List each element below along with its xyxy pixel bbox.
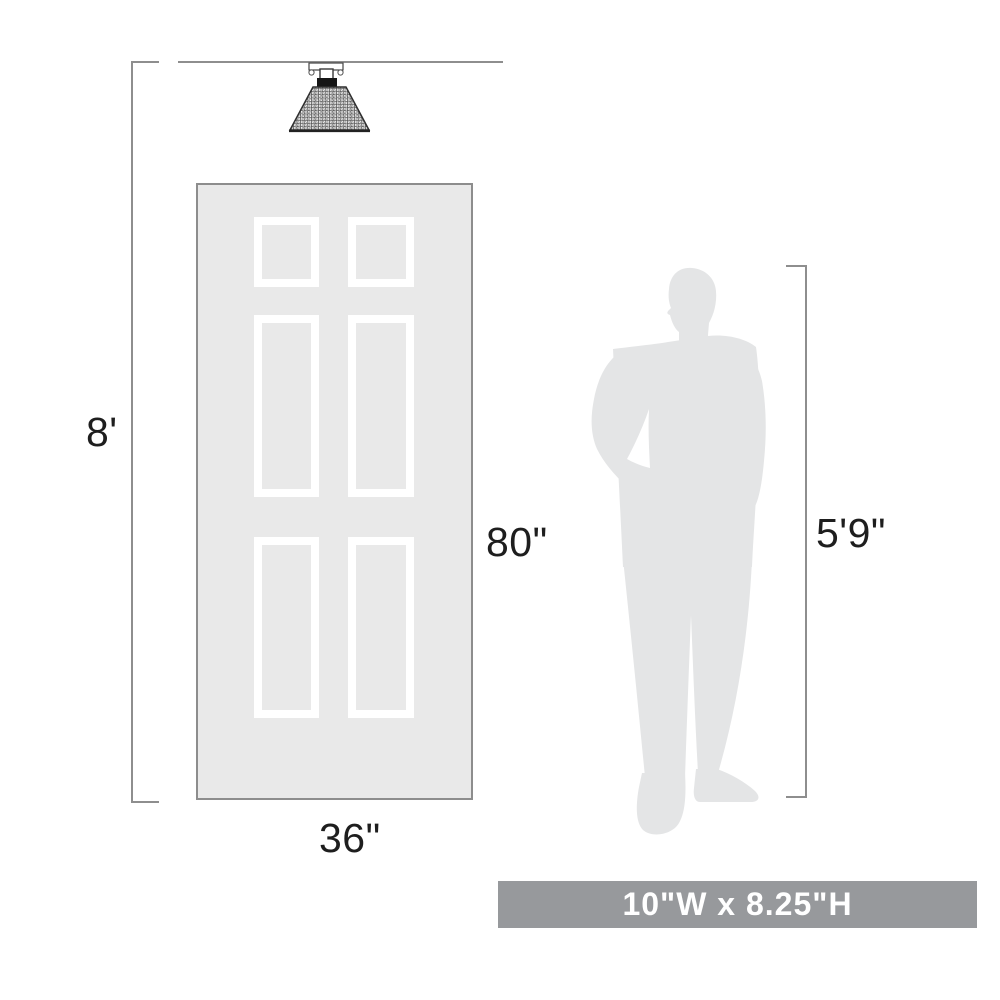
six-panel-door-illustration [196, 183, 473, 800]
door-panel [348, 537, 414, 718]
silhouette-left-foot [637, 773, 686, 834]
door-height-label: 80" [486, 522, 548, 563]
lamp-neck [320, 69, 333, 79]
standing-man-silhouette [588, 263, 772, 839]
person-height-bracket-top-foot [786, 265, 807, 267]
product-size-banner: 10"W x 8.25"H [498, 881, 977, 928]
door-panel [254, 537, 319, 718]
door-panel-inset [356, 545, 406, 710]
ceiling-height-bracket-top-foot [131, 61, 159, 63]
lamp-screw-right [338, 70, 343, 75]
lamp-mesh-shade [290, 87, 369, 130]
person-height-bracket-vertical [805, 265, 807, 798]
door-panel-inset [356, 323, 406, 489]
ceiling-height-label: 8' [86, 412, 118, 453]
product-size-label: 10"W x 8.25"H [622, 886, 852, 922]
door-panel-inset [262, 225, 311, 279]
person-height-bracket-bottom-foot [786, 796, 807, 798]
person-height-label: 5'9" [816, 513, 886, 554]
ceiling-height-bracket-vertical [131, 61, 133, 803]
size-guide-diagram: 8' 80" 36" [0, 0, 1000, 1000]
ceiling-height-bracket-bottom-foot [131, 801, 159, 803]
door-panel [348, 217, 414, 287]
door-panel-inset [356, 225, 406, 279]
lamp-screw-left [309, 70, 314, 75]
door-width-label: 36" [319, 818, 381, 859]
door-panel [254, 315, 319, 497]
door-panel [348, 315, 414, 497]
door-panel-inset [262, 323, 311, 489]
silhouette-legs [623, 559, 752, 777]
door-panel-inset [262, 545, 311, 710]
silhouette-right-foot [694, 769, 759, 802]
semi-flush-ceiling-light-icon [288, 58, 372, 134]
lamp-socket [317, 78, 337, 87]
door-panel [254, 217, 319, 287]
